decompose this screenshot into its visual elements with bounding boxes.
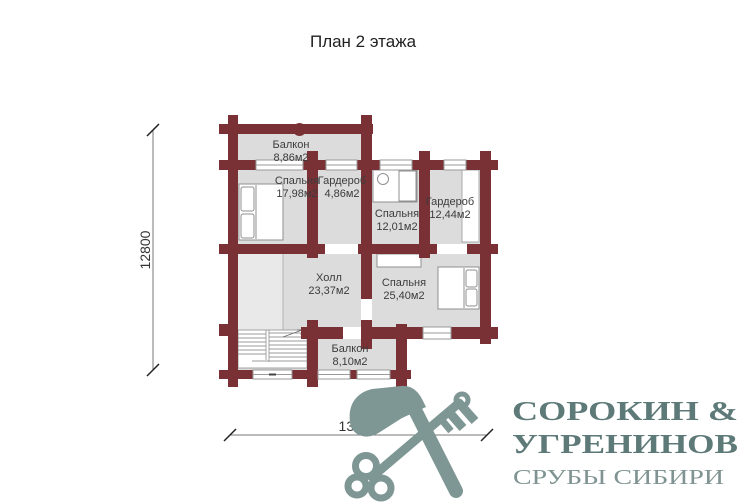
- svg-text:8,86м2: 8,86м2: [273, 152, 308, 164]
- bed-icon-bedroom-3: [438, 267, 479, 309]
- door-bedroom-3: [361, 299, 372, 320]
- room-label-bedroom-2: Спальня 12,01м2: [375, 208, 419, 233]
- window: [357, 370, 390, 379]
- page-title: План 2 этажа: [310, 32, 417, 51]
- svg-text:25,40м2: 25,40м2: [383, 290, 424, 302]
- window: [326, 160, 357, 170]
- closet-icon-bedroom-3: [377, 254, 421, 267]
- svg-text:Спальня: Спальня: [275, 175, 319, 187]
- door-wardrobe-1: [325, 244, 358, 254]
- window: [318, 370, 350, 379]
- room-label-bedroom-1: Спальня 17,98м2: [275, 175, 319, 200]
- room-label-wardrobe-1: Гардероб 4,86м2: [318, 175, 366, 200]
- log-end-stub-left: [219, 324, 238, 336]
- furniture-bedroom-2: [373, 170, 417, 202]
- svg-text:Спальня: Спальня: [375, 208, 419, 220]
- window: [444, 160, 466, 170]
- room-label-wardrobe-2: Гардероб 12,44м2: [426, 196, 474, 221]
- logo-line-3: СРУБЫ СИБИРИ: [513, 465, 724, 489]
- log-end-dot: [293, 123, 306, 136]
- room-label-bedroom-3: Спальня 25,40м2: [382, 277, 426, 302]
- logo-line-2: УГРЕНИНОВ: [512, 429, 738, 459]
- svg-text:Спальня: Спальня: [382, 277, 426, 289]
- svg-text:8,10м2: 8,10м2: [332, 356, 367, 368]
- wall-v2: [307, 151, 318, 258]
- door-wardrobe-2: [437, 244, 467, 254]
- company-logo: СОРОКИН & УГРЕНИНОВ СРУБЫ СИБИРИ: [348, 386, 738, 498]
- stairwell-void: [238, 254, 283, 332]
- svg-text:Балкон: Балкон: [273, 139, 310, 151]
- svg-text:23,37м2: 23,37м2: [308, 285, 349, 297]
- svg-text:17,98м2: 17,98м2: [276, 188, 317, 200]
- wall-f: [396, 324, 407, 387]
- floor-plan-canvas: План 2 этажа: [0, 0, 753, 502]
- room-label-balcony-top: Балкон 8,86м2: [273, 139, 310, 164]
- svg-text:Холл: Холл: [316, 272, 342, 284]
- floor-plan-page: План 2 этажа: [0, 0, 753, 502]
- svg-text:12,44м2: 12,44м2: [429, 209, 470, 221]
- svg-text:Гардероб: Гардероб: [318, 175, 366, 187]
- dimension-vertical: 12800: [137, 124, 159, 376]
- window: [253, 370, 292, 379]
- svg-text:Гардероб: Гардероб: [426, 196, 474, 208]
- floor-plan: Балкон 8,86м2 Спальня 17,98м2 Гардероб 4…: [219, 115, 498, 387]
- svg-text:4,86м2: 4,86м2: [324, 188, 359, 200]
- window: [380, 160, 412, 170]
- svg-text:12,01м2: 12,01м2: [376, 221, 417, 233]
- door-balcony-bottom: [343, 327, 361, 339]
- axe-and-key-icon: [348, 386, 475, 498]
- svg-text:Балкон: Балкон: [332, 343, 369, 355]
- room-label-balcony-bottom: Балкон 8,10м2: [332, 343, 369, 368]
- window: [423, 327, 451, 339]
- logo-line-1: СОРОКИН &: [512, 396, 738, 426]
- staircase: [238, 330, 307, 368]
- wall-v3-mid: [361, 254, 372, 299]
- wall-stair: [307, 320, 318, 387]
- wall-left: [228, 115, 238, 387]
- dimension-label-vertical: 12800: [137, 230, 153, 269]
- wall-right: [480, 151, 491, 344]
